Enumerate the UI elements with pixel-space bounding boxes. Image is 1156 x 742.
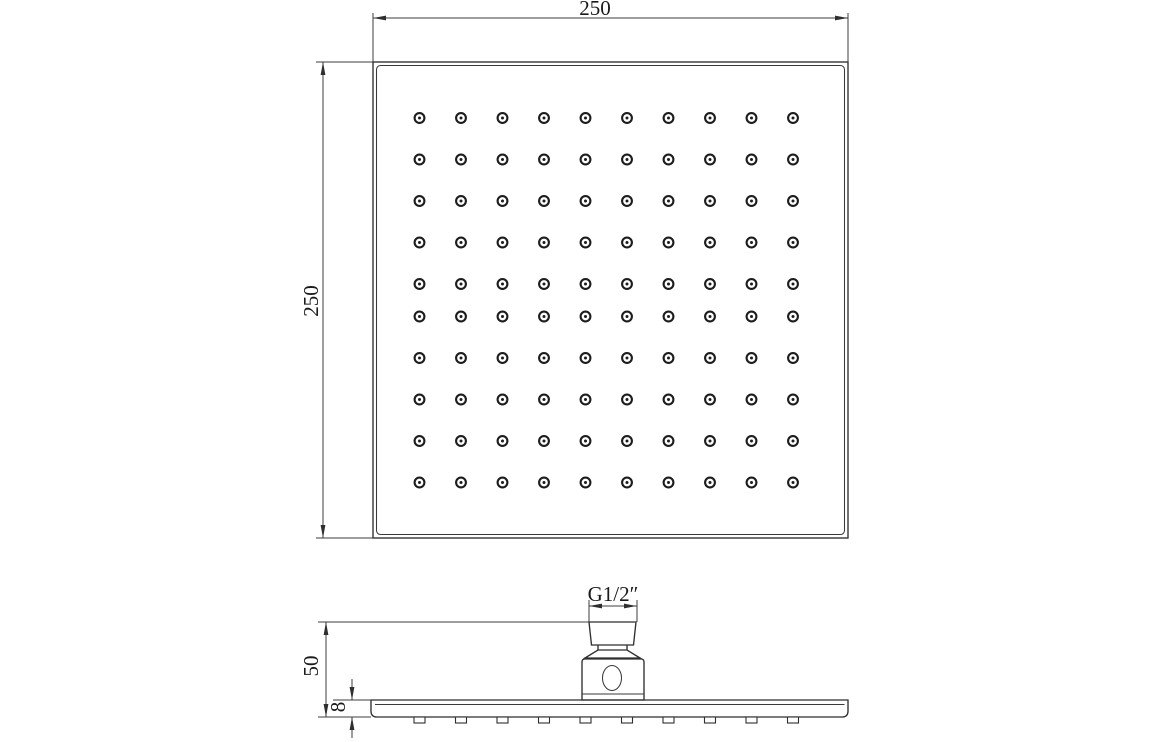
head-face-edge (377, 66, 845, 535)
nozzle-center-dot (418, 158, 421, 161)
nozzle-hole (705, 353, 715, 363)
nozzle-center-dot (626, 440, 629, 443)
nozzle-center-dot (501, 398, 504, 401)
nozzle-hole (456, 436, 466, 446)
nozzle-center-dot (543, 117, 546, 120)
nozzle-center-dot (750, 200, 753, 203)
nozzle-hole (498, 196, 508, 206)
nozzle-hole (498, 113, 508, 123)
shower-head-technical-drawing: 250250 G1/2″508 (0, 0, 1156, 742)
nozzle-center-dot (584, 357, 587, 360)
nozzle-hole (622, 196, 632, 206)
dim-plate-thickness: 8 (326, 679, 371, 738)
nozzle-center-dot (501, 315, 504, 318)
nozzle-center-dot (626, 200, 629, 203)
dim-label-left-height: 250 (299, 285, 323, 317)
nozzle-hole (539, 395, 549, 405)
dim-label-thread: G1/2″ (588, 582, 639, 606)
dimension-arrowhead (835, 16, 848, 21)
dim-thread: G1/2″ (588, 582, 639, 622)
nozzle-hole (456, 478, 466, 488)
plate-outline (371, 700, 848, 717)
nozzle-center-dot (709, 241, 712, 244)
nozzle-hole (747, 478, 757, 488)
side-view: G1/2″508 (299, 582, 848, 738)
nozzle-center-dot (667, 158, 670, 161)
nozzle-hole (498, 353, 508, 363)
nozzle-center-dot (460, 481, 463, 484)
nozzle-center-dot (543, 357, 546, 360)
nozzle-center-dot (584, 158, 587, 161)
nozzle-hole (498, 312, 508, 322)
nozzle-center-dot (584, 200, 587, 203)
nozzle-hole (456, 279, 466, 289)
nozzle-center-dot (418, 440, 421, 443)
nozzle-center-dot (418, 357, 421, 360)
nozzle-center-dot (709, 357, 712, 360)
nozzle-center-dot (584, 241, 587, 244)
nozzle-hole (747, 279, 757, 289)
nozzle-hole (664, 113, 674, 123)
dimension-arrowhead (324, 622, 329, 635)
nozzle-center-dot (667, 241, 670, 244)
nozzle-center-dot (750, 398, 753, 401)
nozzle-center-dot (543, 440, 546, 443)
nozzle-center-dot (501, 158, 504, 161)
nozzle-center-dot (543, 398, 546, 401)
nozzle-hole (664, 196, 674, 206)
nozzle-hole (622, 279, 632, 289)
nozzle-tip (705, 717, 716, 723)
nozzle-hole (622, 155, 632, 165)
dim-label-side-height: 50 (299, 656, 323, 677)
nozzle-hole (539, 478, 549, 488)
nozzle-hole (705, 238, 715, 248)
nozzle-center-dot (584, 117, 587, 120)
nozzle-center-dot (460, 158, 463, 161)
nozzle-center-dot (460, 283, 463, 286)
nozzle-hole (705, 196, 715, 206)
nozzle-center-dot (460, 200, 463, 203)
dimension-arrowhead (321, 525, 326, 538)
dimension-arrowhead (373, 16, 386, 21)
nozzle-hole (415, 196, 425, 206)
nozzle-center-dot (501, 200, 504, 203)
nozzle-center-dot (750, 481, 753, 484)
dimension-arrowhead (350, 687, 355, 700)
nozzle-center-dot (709, 117, 712, 120)
nozzle-hole (456, 395, 466, 405)
nozzle-hole (747, 155, 757, 165)
nozzle-hole (581, 353, 591, 363)
nozzle-hole (498, 478, 508, 488)
nozzle-center-dot (750, 440, 753, 443)
nozzle-hole (498, 279, 508, 289)
nozzle-tip (456, 717, 467, 723)
nozzle-hole (581, 196, 591, 206)
connector-collar (585, 650, 640, 658)
nozzle-center-dot (667, 200, 670, 203)
nozzle-center-dot (543, 481, 546, 484)
nozzle-center-dot (584, 398, 587, 401)
nozzle-hole (747, 113, 757, 123)
dimension-arrowhead (321, 62, 326, 75)
nozzle-center-dot (460, 315, 463, 318)
nozzle-hole (539, 279, 549, 289)
nozzle-center-dot (501, 440, 504, 443)
nozzle-hole (456, 353, 466, 363)
nozzle-hole (415, 155, 425, 165)
nozzle-hole (415, 312, 425, 322)
nozzle-hole (498, 436, 508, 446)
head-outer-edge (373, 62, 848, 538)
nozzle-center-dot (626, 481, 629, 484)
nozzle-hole (539, 196, 549, 206)
nozzle-hole (539, 155, 549, 165)
nozzle-hole (705, 113, 715, 123)
nozzle-center-dot (667, 398, 670, 401)
nozzle-hole (664, 312, 674, 322)
nozzle-center-dot (750, 357, 753, 360)
nozzle-hole (539, 353, 549, 363)
nozzle-center-dot (501, 241, 504, 244)
nozzle-center-dot (709, 398, 712, 401)
nozzle-hole (664, 353, 674, 363)
nozzle-center-dot (584, 315, 587, 318)
nozzle-hole (581, 155, 591, 165)
nozzle-center-dot (750, 117, 753, 120)
nozzle-center-dot (584, 481, 587, 484)
nozzle-hole (788, 238, 798, 248)
nozzle-tip (497, 717, 508, 723)
nozzle-center-dot (418, 398, 421, 401)
nozzle-hole (622, 353, 632, 363)
nozzle-hole (705, 312, 715, 322)
nozzle-hole (705, 395, 715, 405)
nozzle-hole (456, 238, 466, 248)
nozzle-center-dot (667, 481, 670, 484)
nozzle-tip (622, 717, 633, 723)
nozzle-hole (705, 279, 715, 289)
nozzle-tip (414, 717, 425, 723)
nozzle-hole (415, 279, 425, 289)
nozzle-hole (788, 155, 798, 165)
nozzle-hole (747, 238, 757, 248)
nozzle-center-dot (501, 357, 504, 360)
nozzle-center-dot (460, 241, 463, 244)
nozzle-tip (788, 717, 799, 723)
nozzle-center-dot (792, 117, 795, 120)
nozzle-hole (705, 155, 715, 165)
nozzle-center-dot (667, 283, 670, 286)
nozzle-center-dot (750, 158, 753, 161)
nozzle-hole (747, 436, 757, 446)
nozzle-hole (456, 113, 466, 123)
nozzle-hole (622, 113, 632, 123)
nozzle-hole (705, 436, 715, 446)
nozzle-center-dot (501, 117, 504, 120)
nozzle-hole (664, 395, 674, 405)
nozzle-center-dot (667, 440, 670, 443)
nozzle-hole (498, 238, 508, 248)
nozzle-hole (788, 312, 798, 322)
nozzle-hole (415, 395, 425, 405)
nozzle-center-dot (667, 117, 670, 120)
nozzle-center-dot (792, 241, 795, 244)
nozzle-hole (415, 113, 425, 123)
nozzle-center-dot (501, 283, 504, 286)
nozzle-hole (456, 155, 466, 165)
nozzle-center-dot (626, 117, 629, 120)
dim-top-width: 250 (373, 0, 848, 62)
nozzle-center-dot (626, 283, 629, 286)
nozzle-grid (415, 113, 798, 487)
nozzle-hole (456, 196, 466, 206)
nozzle-hole (581, 436, 591, 446)
nozzle-hole (664, 155, 674, 165)
nozzle-center-dot (792, 283, 795, 286)
nozzle-center-dot (543, 200, 546, 203)
nozzle-tip (663, 717, 674, 723)
nozzle-hole (581, 395, 591, 405)
nozzle-hole (747, 196, 757, 206)
nozzle-center-dot (667, 357, 670, 360)
nozzle-center-dot (626, 158, 629, 161)
nozzle-center-dot (626, 241, 629, 244)
nozzle-hole (581, 279, 591, 289)
nozzle-hole (747, 395, 757, 405)
nozzle-center-dot (460, 440, 463, 443)
nozzle-hole (581, 312, 591, 322)
nozzle-hole (539, 113, 549, 123)
nozzle-hole (788, 279, 798, 289)
nozzle-center-dot (709, 200, 712, 203)
nozzle-center-dot (418, 481, 421, 484)
nozzle-hole (456, 312, 466, 322)
nozzle-hole (539, 312, 549, 322)
nozzle-hole (664, 478, 674, 488)
nozzle-hole (539, 436, 549, 446)
nozzle-center-dot (418, 117, 421, 120)
nozzle-center-dot (792, 200, 795, 203)
nozzle-hole (788, 395, 798, 405)
nozzle-hole (581, 113, 591, 123)
nozzle-hole (415, 353, 425, 363)
nozzle-hole (539, 238, 549, 248)
nozzle-hole (788, 436, 798, 446)
nozzle-hole (415, 436, 425, 446)
nozzle-hole (622, 478, 632, 488)
inlet-hole-ellipse (603, 666, 622, 691)
nozzle-center-dot (709, 283, 712, 286)
nozzle-center-dot (750, 283, 753, 286)
drawing-canvas: 250250 G1/2″508 (0, 0, 1156, 742)
nozzle-center-dot (418, 283, 421, 286)
nozzle-center-dot (584, 283, 587, 286)
nozzle-hole (581, 478, 591, 488)
nozzle-hole (498, 395, 508, 405)
nozzle-center-dot (418, 241, 421, 244)
nozzle-center-dot (584, 440, 587, 443)
nozzle-center-dot (750, 241, 753, 244)
nozzle-center-dot (543, 283, 546, 286)
nozzle-center-dot (543, 315, 546, 318)
nozzle-hole (415, 478, 425, 488)
nozzle-center-dot (460, 398, 463, 401)
dim-label-plate-thickness: 8 (326, 702, 350, 713)
nozzle-hole (581, 238, 591, 248)
dimension-arrowhead (350, 717, 355, 730)
nozzle-tip (580, 717, 591, 723)
nozzle-center-dot (792, 357, 795, 360)
nozzle-hole (788, 353, 798, 363)
nozzle-hole (705, 478, 715, 488)
nozzle-center-dot (709, 158, 712, 161)
top-view: 250250 (299, 0, 848, 538)
nozzle-center-dot (709, 315, 712, 318)
nozzle-center-dot (626, 315, 629, 318)
nozzle-hole (747, 353, 757, 363)
nozzle-center-dot (750, 315, 753, 318)
nozzle-hole (622, 395, 632, 405)
nozzle-center-dot (792, 398, 795, 401)
nozzle-hole (664, 279, 674, 289)
dim-label-top-width: 250 (579, 0, 611, 20)
nozzle-tip (539, 717, 550, 723)
nozzle-hole (664, 238, 674, 248)
nozzle-hole (622, 436, 632, 446)
nozzle-center-dot (418, 200, 421, 203)
nozzle-hole (788, 478, 798, 488)
nozzle-center-dot (667, 315, 670, 318)
nozzle-center-dot (792, 481, 795, 484)
nozzle-hole (747, 312, 757, 322)
nozzle-hole (664, 436, 674, 446)
nozzle-center-dot (543, 241, 546, 244)
nozzle-hole (788, 196, 798, 206)
nozzle-center-dot (709, 440, 712, 443)
nozzle-hole (622, 312, 632, 322)
nozzle-center-dot (792, 440, 795, 443)
threaded-pipe (589, 622, 636, 645)
nozzle-hole (622, 238, 632, 248)
nozzle-tip (746, 717, 757, 723)
nozzle-center-dot (626, 398, 629, 401)
nozzle-tip-row (414, 717, 799, 723)
nozzle-center-dot (460, 117, 463, 120)
nozzle-center-dot (792, 158, 795, 161)
nozzle-center-dot (709, 481, 712, 484)
nozzle-hole (788, 113, 798, 123)
nozzle-center-dot (626, 357, 629, 360)
nozzle-center-dot (418, 315, 421, 318)
dim-left-height: 250 (299, 62, 373, 538)
nozzle-center-dot (501, 481, 504, 484)
nozzle-center-dot (792, 315, 795, 318)
nozzle-center-dot (460, 357, 463, 360)
nozzle-hole (498, 155, 508, 165)
nozzle-center-dot (543, 158, 546, 161)
nozzle-hole (415, 238, 425, 248)
